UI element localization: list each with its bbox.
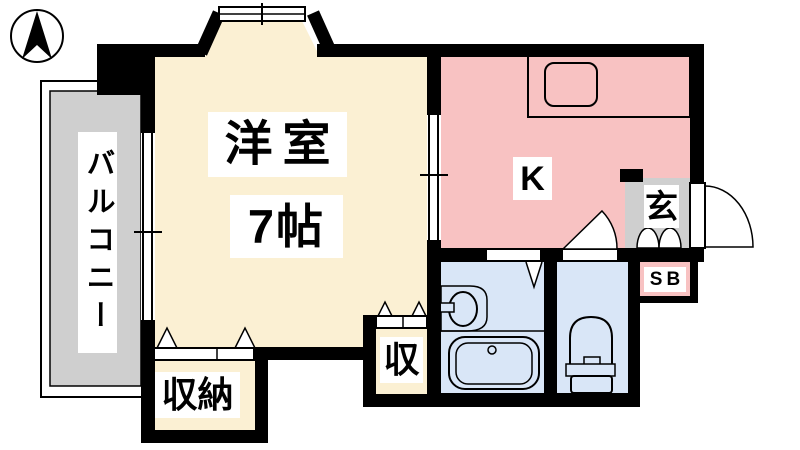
shoe-box-label: SB [644, 267, 686, 292]
wall-closet-large-bottom [141, 430, 268, 443]
balcony-label: バルコニー [78, 132, 117, 353]
wall-kitchen-right [690, 44, 704, 185]
closet-small-door-track [376, 316, 427, 328]
wall-washroom-toilet-divider [544, 248, 557, 397]
bathtub-drain-icon [488, 346, 496, 354]
wall-closet-small-left [363, 315, 376, 407]
wall-top-right [317, 44, 704, 57]
western-room-label: 洋室 [208, 112, 347, 177]
kitchen-sink-icon [545, 63, 597, 106]
closet-large-door-track [154, 348, 254, 360]
wall-entrance-stub [620, 169, 643, 182]
wall-closet-large-right [255, 349, 268, 443]
wall-room-bottom [255, 347, 376, 360]
washroom-door-gap [487, 250, 540, 260]
entrance-door-swing [705, 186, 753, 247]
faucet-icon [440, 303, 454, 312]
toilet-fixture [566, 317, 615, 393]
closet-large-label: 収納 [155, 372, 240, 418]
entrance-door-leaf [690, 183, 705, 248]
western-room-size-label: 7帖 [230, 195, 343, 258]
western-room-floor [155, 21, 427, 347]
wall-left-upper [141, 44, 155, 135]
wall-left-lower [141, 318, 155, 443]
floor-plan: 洋室 7帖 K バルコニー 収納 収 玄 SB [0, 0, 800, 450]
north-compass-icon [11, 10, 63, 62]
kitchen-counter [528, 55, 690, 117]
toilet-tank-icon [571, 376, 612, 393]
closet-small-label: 収 [380, 337, 423, 383]
wall-unit-bottom [427, 393, 640, 407]
entrance-label: 玄 [644, 185, 679, 228]
toilet-seat-band [566, 364, 615, 376]
wall-room-kitchen-upper [427, 44, 441, 115]
toilet-door-gap [563, 250, 617, 260]
wall-corner-block [97, 44, 143, 95]
wall-washroom-left [427, 248, 441, 407]
kitchen-label: K [513, 157, 552, 200]
